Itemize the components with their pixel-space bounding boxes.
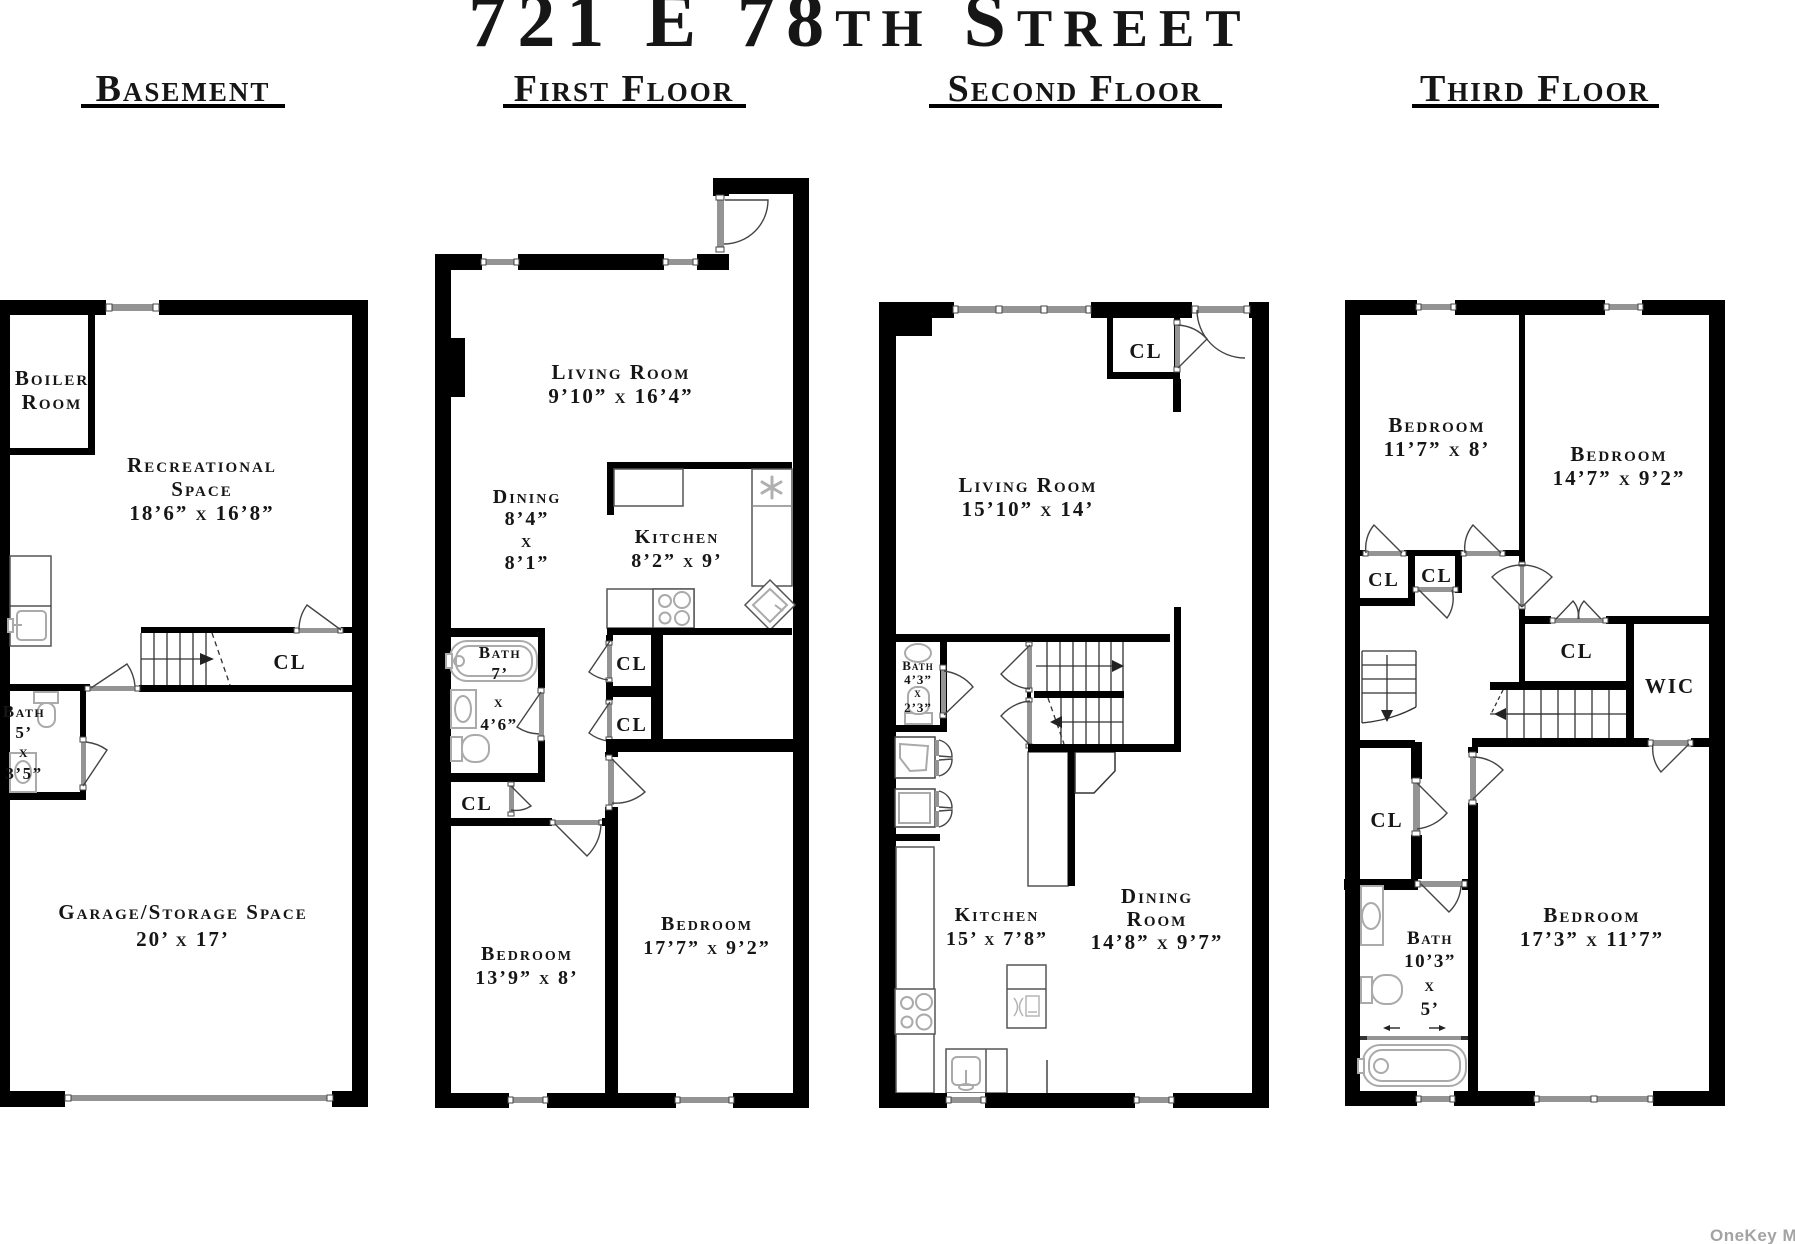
svg-text:CL: CL <box>273 650 306 674</box>
svg-text:Kitchen: Kitchen <box>635 526 720 548</box>
svg-text:14’7” x 9’2”: 14’7” x 9’2” <box>1553 466 1686 490</box>
svg-text:5’: 5’ <box>15 723 32 742</box>
svg-text:CL: CL <box>1368 569 1400 591</box>
svg-text:Bath: Bath <box>1407 928 1453 949</box>
svg-text:13’9” x 8’: 13’9” x 8’ <box>475 967 578 989</box>
svg-text:CL: CL <box>461 793 493 815</box>
svg-text:9’10” x 16’4”: 9’10” x 16’4” <box>548 384 693 408</box>
svg-text:Room: Room <box>22 390 83 414</box>
svg-text:x: x <box>521 530 533 552</box>
svg-text:CL: CL <box>1129 339 1162 363</box>
svg-text:20’ x 17’: 20’ x 17’ <box>136 927 230 951</box>
svg-text:18’6” x 16’8”: 18’6” x 16’8” <box>129 501 274 525</box>
svg-text:Bath: Bath <box>479 643 521 662</box>
svg-text:OneKey MLS: OneKey MLS <box>1710 1226 1795 1244</box>
svg-text:Bedroom: Bedroom <box>1570 442 1667 466</box>
svg-text:Space: Space <box>171 477 232 501</box>
svg-text:Second Floor: Second Floor <box>948 68 1203 110</box>
svg-text:Bedroom: Bedroom <box>1388 413 1485 437</box>
svg-text:CL: CL <box>616 653 648 675</box>
svg-text:Living Room: Living Room <box>959 473 1098 497</box>
svg-text:Bedroom: Bedroom <box>481 943 573 965</box>
svg-text:x: x <box>914 685 922 700</box>
svg-text:Basement: Basement <box>96 68 271 110</box>
svg-text:Dining: Dining <box>1121 884 1193 908</box>
svg-text:Recreational: Recreational <box>127 453 277 477</box>
svg-text:x: x <box>19 742 29 761</box>
svg-text:11’7” x 8’: 11’7” x 8’ <box>1384 437 1491 461</box>
svg-text:CL: CL <box>1370 808 1403 832</box>
svg-text:8’1”: 8’1” <box>505 552 550 574</box>
svg-text:4’6”: 4’6” <box>480 715 517 734</box>
svg-text:7’: 7’ <box>491 664 508 683</box>
svg-text:x: x <box>494 692 504 711</box>
svg-text:8’2” x 9’: 8’2” x 9’ <box>631 550 722 572</box>
svg-text:5’: 5’ <box>1421 999 1440 1020</box>
svg-text:721 E 78th Street: 721 E 78th Street <box>468 0 1251 63</box>
svg-text:17’3” x 11’7”: 17’3” x 11’7” <box>1520 927 1664 951</box>
svg-text:WIC: WIC <box>1645 674 1695 698</box>
svg-text:Dining: Dining <box>493 486 561 508</box>
svg-text:Bath: Bath <box>3 702 45 721</box>
svg-text:10’3”: 10’3” <box>1404 951 1456 972</box>
svg-text:15’ x 7’8”: 15’ x 7’8” <box>946 928 1048 950</box>
svg-text:Garage/Storage Space: Garage/Storage Space <box>58 900 307 924</box>
svg-text:Living Room: Living Room <box>552 360 691 384</box>
svg-text:17’7” x 9’2”: 17’7” x 9’2” <box>643 937 770 959</box>
svg-text:Room: Room <box>1127 907 1188 931</box>
svg-text:2’3”: 2’3” <box>904 700 932 715</box>
svg-text:Boiler: Boiler <box>15 366 89 390</box>
svg-text:First Floor: First Floor <box>514 68 734 110</box>
svg-text:Bedroom: Bedroom <box>661 913 753 935</box>
svg-text:CL: CL <box>1421 565 1453 587</box>
svg-text:CL: CL <box>616 714 648 736</box>
svg-text:Bath: Bath <box>902 658 934 673</box>
svg-text:3’5”: 3’5” <box>5 764 42 783</box>
svg-text:Third Floor: Third Floor <box>1420 68 1650 110</box>
svg-text:8’4”: 8’4” <box>505 508 550 530</box>
svg-text:Bedroom: Bedroom <box>1543 903 1640 927</box>
svg-text:15’10” x 14’: 15’10” x 14’ <box>962 497 1095 521</box>
svg-text:Kitchen: Kitchen <box>955 904 1040 926</box>
svg-text:x: x <box>1425 975 1436 996</box>
svg-text:14’8” x 9’7”: 14’8” x 9’7” <box>1091 930 1224 954</box>
svg-text:CL: CL <box>1560 639 1593 663</box>
